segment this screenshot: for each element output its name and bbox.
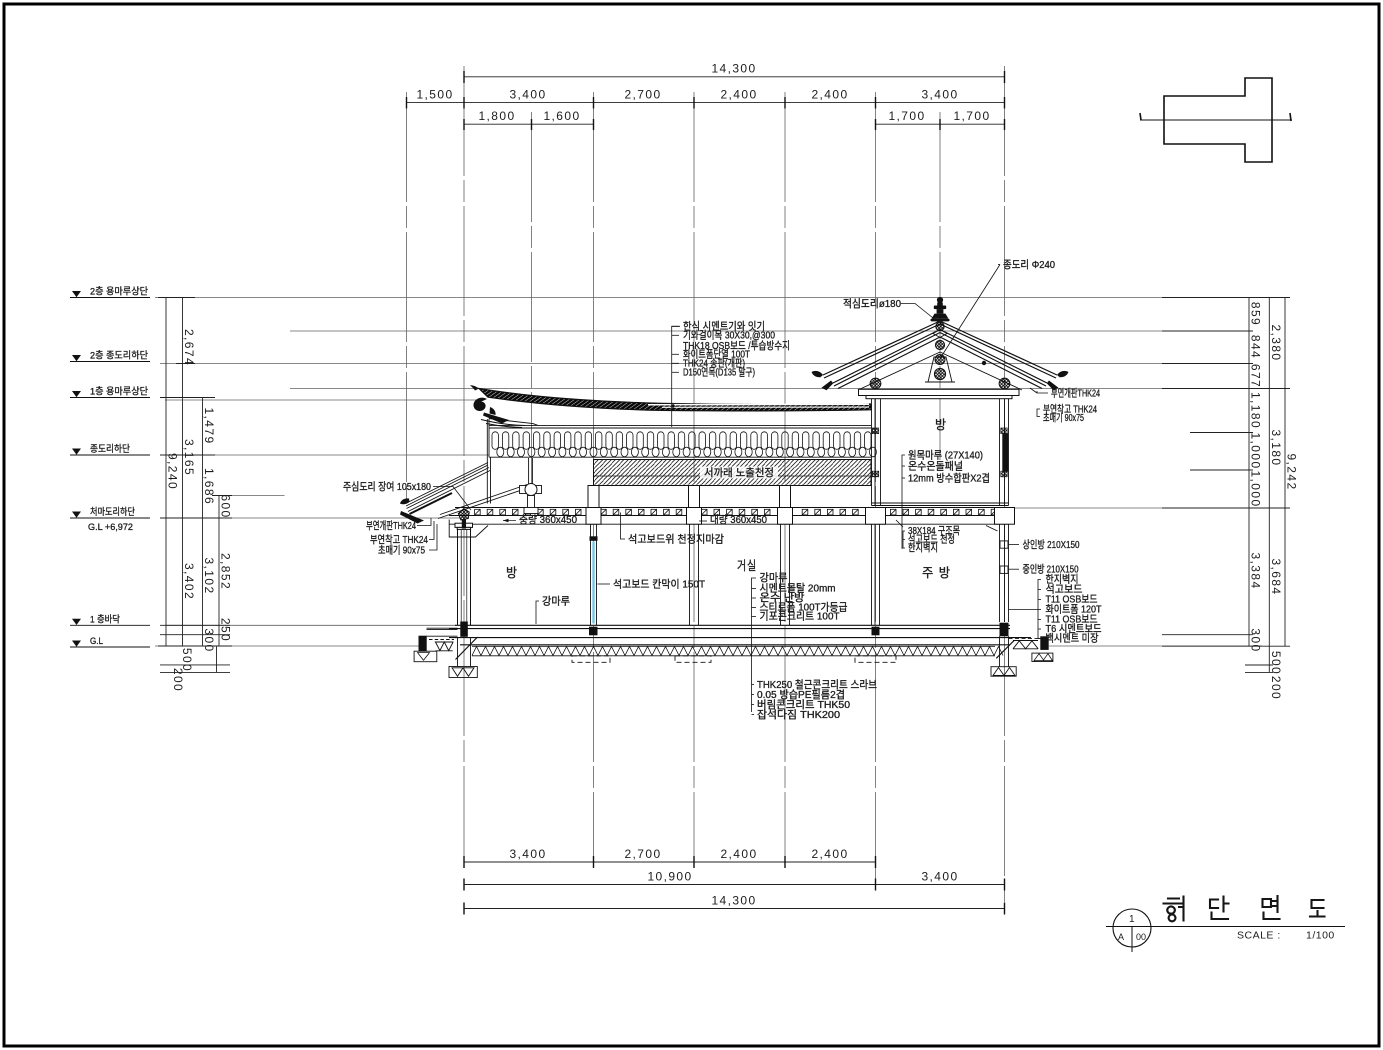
svg-text:600: 600 bbox=[219, 494, 233, 518]
svg-text:200: 200 bbox=[171, 668, 185, 692]
svg-text:초매기 90x75: 초매기 90x75 bbox=[378, 545, 425, 557]
svg-text:상인방 210X150: 상인방 210X150 bbox=[1023, 539, 1080, 551]
svg-text:1,500: 1,500 bbox=[416, 88, 453, 102]
svg-text:3,165: 3,165 bbox=[182, 439, 196, 476]
svg-text:A: A bbox=[1118, 932, 1124, 942]
svg-text:2,380: 2,380 bbox=[1269, 324, 1283, 361]
svg-text:250: 250 bbox=[219, 618, 233, 642]
svg-text:9,242: 9,242 bbox=[1285, 453, 1299, 490]
svg-text:3,400: 3,400 bbox=[921, 870, 958, 884]
svg-text:SCALE :: SCALE : bbox=[1237, 930, 1281, 942]
svg-text:백시멘트 미장: 백시멘트 미장 bbox=[1046, 633, 1099, 645]
svg-text:1/100: 1/100 bbox=[1306, 930, 1335, 942]
svg-text:1: 1 bbox=[1129, 914, 1135, 925]
svg-text:종도리 Φ240: 종도리 Φ240 bbox=[1003, 259, 1055, 271]
svg-text:1,180: 1,180 bbox=[1249, 392, 1263, 429]
svg-text:적심도리ø180: 적심도리ø180 bbox=[843, 298, 901, 310]
svg-text:3,384: 3,384 bbox=[1249, 552, 1263, 589]
svg-text:G.L +6,972: G.L +6,972 bbox=[88, 522, 133, 533]
svg-text:초매기 90x75: 초매기 90x75 bbox=[1043, 412, 1084, 424]
svg-text:1,686: 1,686 bbox=[202, 468, 216, 505]
svg-text:석고보드 칸막이 150T: 석고보드 칸막이 150T bbox=[613, 579, 706, 591]
svg-text:3,400: 3,400 bbox=[509, 847, 546, 861]
svg-text:3,400: 3,400 bbox=[509, 88, 546, 102]
svg-text:1,000: 1,000 bbox=[1249, 432, 1263, 469]
svg-text:2,400: 2,400 bbox=[811, 88, 848, 102]
svg-text:온수온돌패널: 온수온돌패널 bbox=[908, 461, 963, 473]
svg-text:12mm 방수합판X2겹: 12mm 방수합판X2겹 bbox=[908, 473, 990, 485]
svg-text:처마도리하단: 처마도리하단 bbox=[90, 506, 135, 518]
svg-text:대량 360x450: 대량 360x450 bbox=[710, 514, 767, 526]
svg-text:1,800: 1,800 bbox=[478, 109, 515, 123]
svg-text:00: 00 bbox=[1136, 932, 1146, 942]
svg-text:기포콘크리트 100T: 기포콘크리트 100T bbox=[760, 611, 841, 623]
svg-text:200: 200 bbox=[1269, 676, 1283, 700]
svg-text:14,300: 14,300 bbox=[711, 62, 756, 76]
svg-text:강마루: 강마루 bbox=[542, 596, 570, 608]
svg-text:1,600: 1,600 bbox=[543, 109, 580, 123]
svg-text:1층 용마루상단: 1층 용마루상단 bbox=[90, 387, 148, 398]
svg-text:1,000: 1,000 bbox=[1249, 470, 1263, 507]
svg-text:1,479: 1,479 bbox=[202, 407, 216, 444]
svg-text:14,300: 14,300 bbox=[711, 894, 756, 908]
svg-text:부연개판THK24: 부연개판THK24 bbox=[366, 520, 416, 532]
svg-text:한지벽지: 한지벽지 bbox=[908, 542, 938, 554]
svg-text:2,700: 2,700 bbox=[624, 847, 661, 861]
svg-text:2,700: 2,700 bbox=[624, 88, 661, 102]
svg-text:방: 방 bbox=[506, 566, 518, 580]
svg-text:주 방: 주 방 bbox=[922, 566, 951, 580]
svg-text:2,400: 2,400 bbox=[720, 88, 757, 102]
svg-text:거실: 거실 bbox=[737, 559, 757, 573]
svg-text:G.L: G.L bbox=[90, 636, 103, 647]
svg-text:300: 300 bbox=[1249, 628, 1263, 652]
svg-text:500: 500 bbox=[1269, 651, 1283, 675]
svg-text:2층 종도리하단: 2층 종도리하단 bbox=[90, 350, 148, 362]
svg-text:3,400: 3,400 bbox=[921, 88, 958, 102]
svg-text:1,700: 1,700 bbox=[953, 109, 990, 123]
svg-text:2,400: 2,400 bbox=[811, 847, 848, 861]
svg-text:844: 844 bbox=[1249, 335, 1263, 359]
svg-text:주심도리 장여 105x180: 주심도리 장여 105x180 bbox=[343, 481, 431, 493]
svg-text:부연개판THK24: 부연개판THK24 bbox=[1051, 388, 1100, 400]
svg-text:1,700: 1,700 bbox=[888, 109, 925, 123]
svg-text:잡석다짐 THK200: 잡석다짐 THK200 bbox=[757, 709, 840, 721]
svg-text:2,400: 2,400 bbox=[720, 847, 757, 861]
svg-text:방: 방 bbox=[935, 418, 947, 432]
svg-text:서까래 노출천정: 서까래 노출천정 bbox=[704, 467, 774, 479]
svg-text:300: 300 bbox=[202, 628, 216, 652]
svg-text:3,684: 3,684 bbox=[1269, 558, 1283, 595]
svg-text:2,674: 2,674 bbox=[182, 329, 196, 366]
svg-text:859: 859 bbox=[1249, 302, 1263, 326]
svg-text:677: 677 bbox=[1249, 364, 1263, 388]
svg-text:3,180: 3,180 bbox=[1269, 429, 1283, 466]
svg-text:D150연목(D135 말구): D150연목(D135 말구) bbox=[683, 367, 755, 379]
svg-text:9,240: 9,240 bbox=[166, 453, 180, 490]
svg-text:3,102: 3,102 bbox=[202, 557, 216, 594]
svg-text:1 층바닥: 1 층바닥 bbox=[90, 614, 120, 625]
svg-text:충량 360x450: 충량 360x450 bbox=[519, 514, 577, 526]
svg-text:2층 용마루상단: 2층 용마루상단 bbox=[90, 287, 148, 298]
svg-text:3,402: 3,402 bbox=[182, 563, 196, 600]
svg-text:10,900: 10,900 bbox=[647, 870, 692, 884]
svg-text:종도리하단: 종도리하단 bbox=[90, 443, 130, 455]
svg-text:석고보드위 천정지마감: 석고보드위 천정지마감 bbox=[628, 533, 724, 546]
svg-text:2,852: 2,852 bbox=[219, 553, 233, 590]
